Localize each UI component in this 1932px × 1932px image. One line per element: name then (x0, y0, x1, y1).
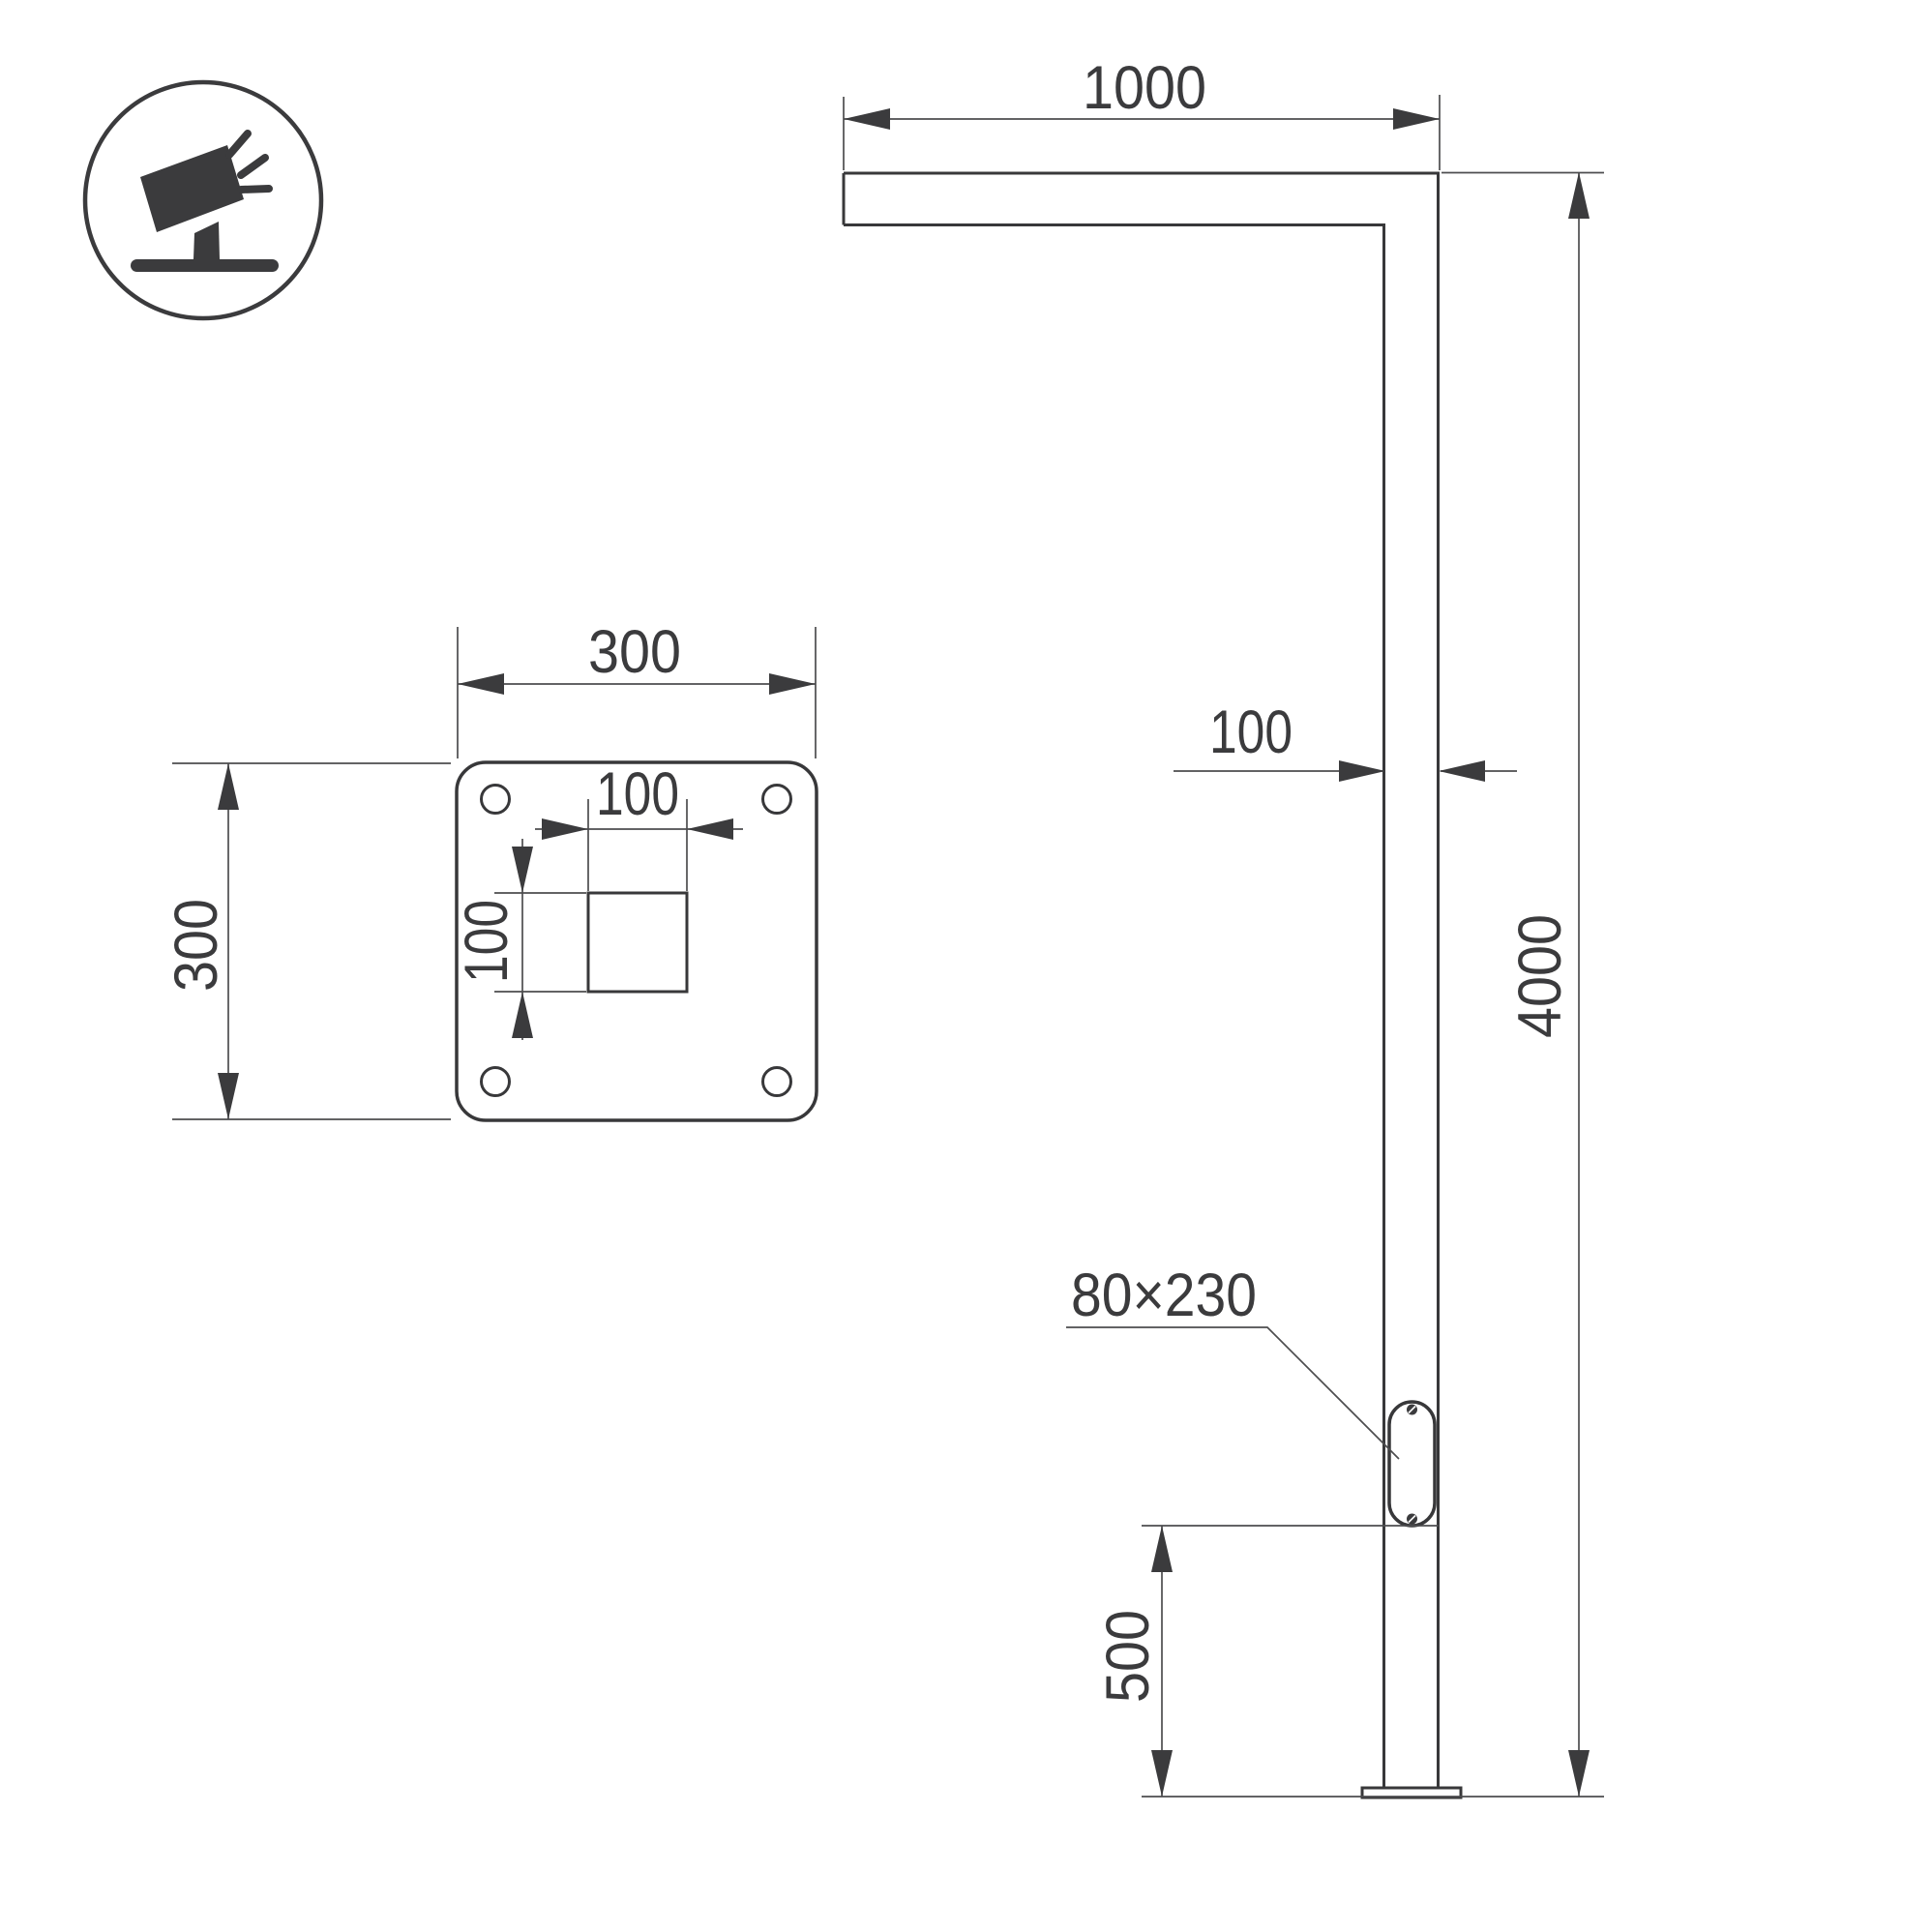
arrowhead-right (769, 673, 816, 695)
arrowhead-right (1439, 760, 1485, 782)
pole-width-label: 100 (1209, 698, 1293, 766)
arrowhead-top (1151, 1526, 1173, 1572)
dimension-hole-height: 100 (453, 839, 586, 1040)
pole-side-view (844, 173, 1461, 1798)
floodlight-base (131, 259, 279, 272)
arrowhead-right (1393, 108, 1440, 130)
floodlight-post (193, 222, 220, 259)
arrowhead-top (512, 847, 533, 893)
arrowhead-left (844, 108, 890, 130)
door-size-callout: 80×230 (1066, 1262, 1399, 1459)
pole-and-arm-outline (844, 173, 1439, 1788)
floodlight-badge (85, 82, 321, 318)
arrowhead-right (687, 818, 733, 840)
tilted-floodlight-icon (131, 134, 279, 272)
technical-drawing-canvas: 300 300 100 100 (0, 0, 1932, 1932)
leader-line (1066, 1327, 1399, 1459)
arrowhead-top (218, 763, 239, 810)
access-door (1389, 1402, 1435, 1526)
dimension-pole-height: 4000 (1142, 172, 1604, 1797)
arm-length-label: 1000 (1083, 54, 1206, 122)
arrowhead-bottom (512, 992, 533, 1038)
light-ray-bottom (241, 189, 269, 190)
light-ray-middle (241, 158, 265, 175)
door-screw-bottom (1407, 1514, 1417, 1525)
arrowhead-left (542, 818, 588, 840)
arrowhead-bottom (218, 1073, 239, 1119)
hole-width-label: 100 (596, 760, 679, 828)
dimension-arm-length: 1000 (844, 54, 1440, 170)
bolt-hole-top-left (482, 786, 510, 814)
light-ray-top (229, 134, 248, 155)
arrowhead-left (1339, 760, 1385, 782)
dimension-pole-width: 100 (1174, 698, 1517, 782)
plate-width-label: 300 (588, 618, 681, 686)
center-square-hole (588, 893, 687, 992)
bolt-hole-bottom-right (763, 1068, 791, 1096)
dimension-plate-width: 300 (458, 618, 816, 758)
arrowhead-left (458, 673, 504, 695)
door-offset-label: 500 (1094, 1610, 1162, 1703)
dimension-hole-width: 100 (535, 760, 743, 891)
bolt-hole-bottom-left (482, 1068, 510, 1096)
bolt-hole-top-right (763, 786, 791, 814)
door-size-label: 80×230 (1071, 1262, 1257, 1329)
hole-height-label: 100 (453, 900, 520, 983)
plate-height-label: 300 (163, 899, 230, 992)
dimension-plate-height: 300 (163, 763, 451, 1119)
arrowhead-bottom (1568, 1750, 1590, 1797)
arrowhead-top (1568, 172, 1590, 219)
pole-height-label: 4000 (1506, 914, 1574, 1038)
door-screw-top (1407, 1405, 1417, 1415)
arrowhead-bottom (1151, 1750, 1173, 1797)
dimension-door-offset: 500 (1094, 1526, 1439, 1797)
